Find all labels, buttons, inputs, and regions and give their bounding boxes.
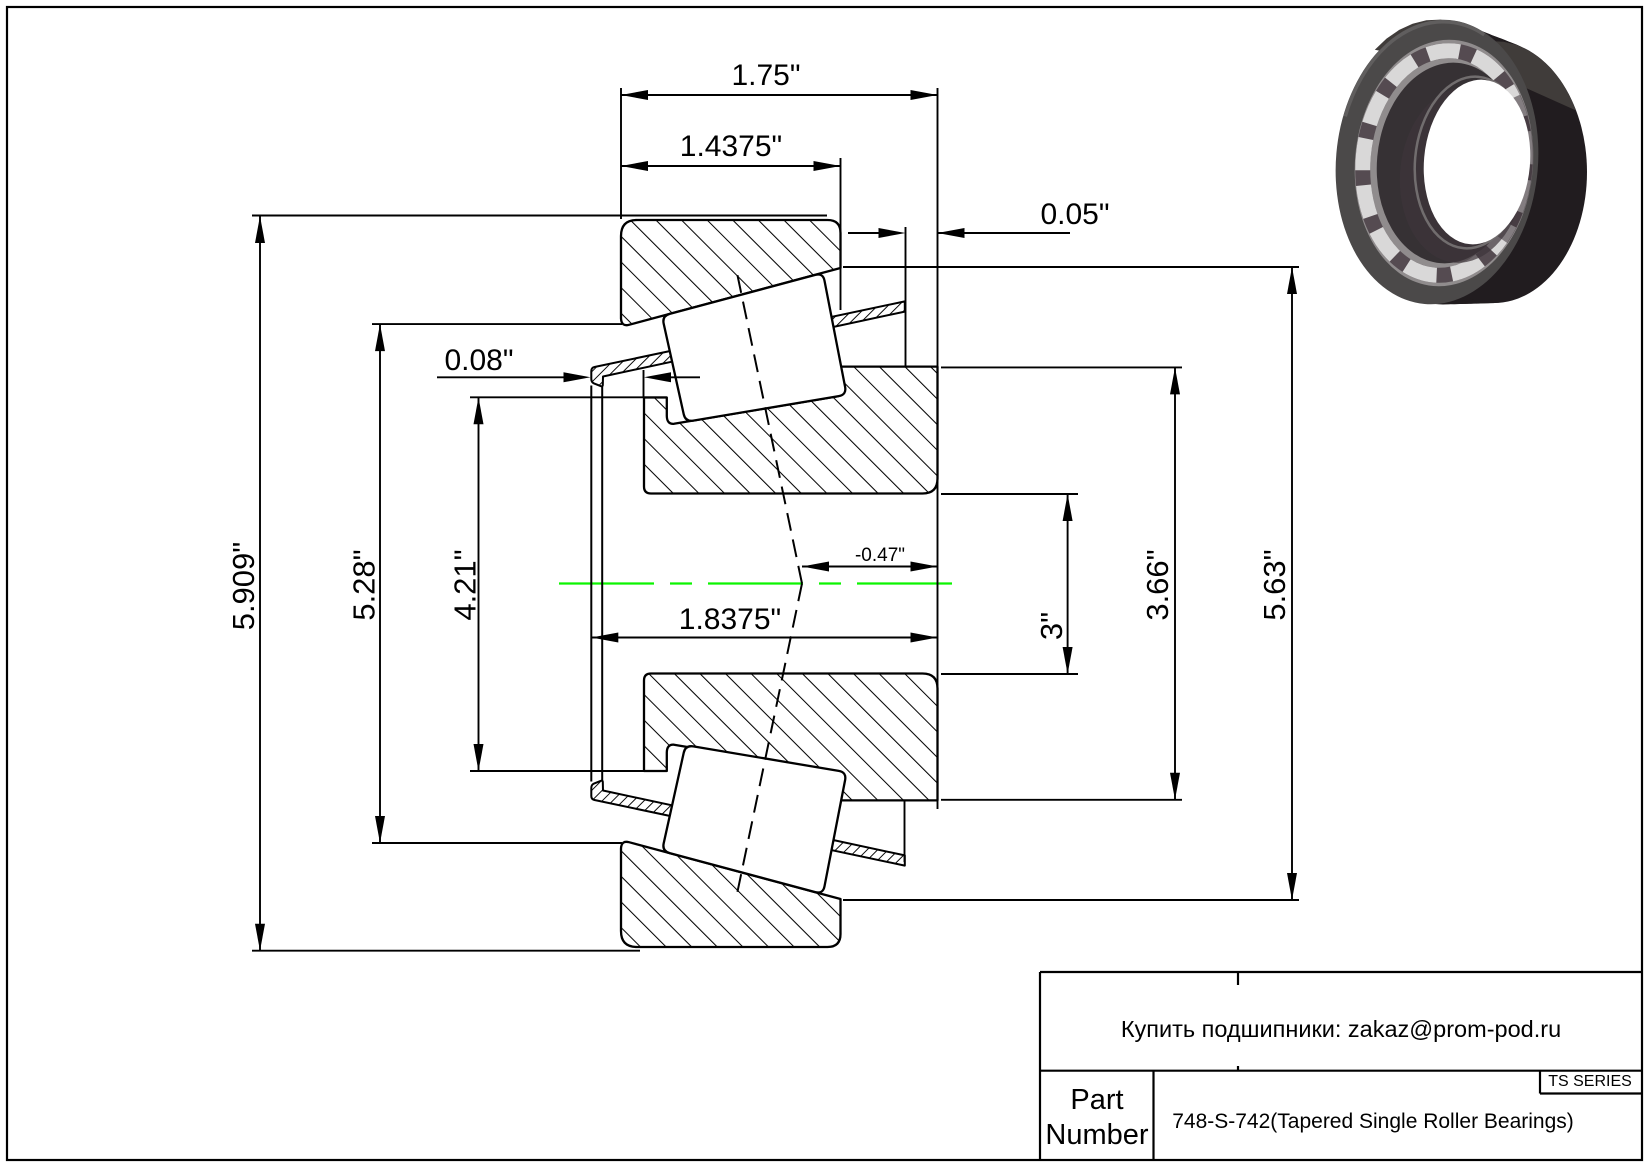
svg-text:-0.47": -0.47": [855, 545, 905, 566]
svg-text:748-S-742(Tapered Single Rolle: 748-S-742(Tapered Single Roller Bearings…: [1172, 1110, 1574, 1133]
svg-text:1.4375": 1.4375": [680, 130, 782, 163]
svg-text:Part: Part: [1070, 1084, 1123, 1116]
svg-text:3": 3": [1034, 612, 1069, 640]
svg-text:5.28": 5.28": [347, 549, 382, 620]
svg-text:5.63": 5.63": [1257, 549, 1292, 620]
svg-text:1.75": 1.75": [731, 59, 800, 92]
svg-text:Number: Number: [1045, 1119, 1148, 1151]
svg-text:5.909": 5.909": [226, 542, 261, 631]
svg-text:TS SERIES: TS SERIES: [1548, 1073, 1632, 1090]
svg-text:Купить подшипники: zakaz@prom-: Купить подшипники: zakaz@prom-pod.ru: [1121, 1016, 1561, 1042]
svg-text:0.05": 0.05": [1040, 198, 1109, 231]
svg-text:3.66": 3.66": [1140, 549, 1175, 620]
svg-text:4.21": 4.21": [448, 549, 483, 620]
svg-text:1.8375": 1.8375": [679, 603, 781, 636]
svg-text:0.08": 0.08": [444, 344, 513, 377]
